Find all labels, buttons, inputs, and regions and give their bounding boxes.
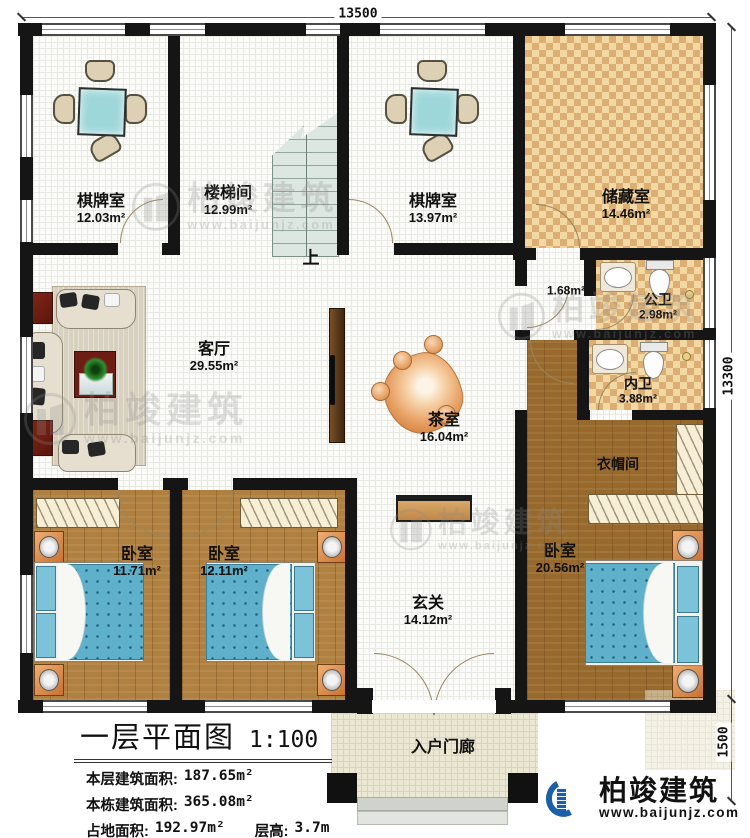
room-label-storage: 储藏室 14.46m² <box>602 189 650 221</box>
floor-drain <box>682 352 691 361</box>
headboard-cushion <box>294 613 314 658</box>
floor-plan-page: 棋牌室 12.03m² 楼梯间 12.99m² 棋牌室 13.97m² 储藏室 … <box>0 0 750 838</box>
chair <box>417 60 447 82</box>
room-label-chess2: 棋牌室 13.97m² <box>409 193 457 225</box>
headboard-cushion <box>294 566 314 611</box>
room-label-bedroom2: 卧室 12.11m² <box>200 546 248 578</box>
room-area: 11.71m² <box>113 564 161 579</box>
area-row-1: 本层建筑面积: 187.65m² <box>74 768 332 789</box>
room-name: 棋牌室 <box>409 193 457 211</box>
window <box>43 700 147 713</box>
wall <box>33 243 118 255</box>
row-label: 本层建筑面积: <box>86 768 178 789</box>
room-area: 16.04m² <box>420 430 468 445</box>
tea-stool <box>393 351 412 370</box>
mahjong-table <box>409 87 459 137</box>
dimension-right: 13300 <box>722 352 737 399</box>
room-label-bedroom1: 卧室 11.71m² <box>113 546 161 578</box>
plan-title: 一层平面图 <box>80 714 235 756</box>
lamp-icon <box>39 536 59 558</box>
mahjong-table <box>77 87 127 137</box>
brand-logo-icon <box>546 772 592 824</box>
porch-step-1 <box>357 797 508 811</box>
row-value: 192.97m² <box>155 820 225 838</box>
wall <box>515 260 527 286</box>
window <box>20 200 33 242</box>
wall <box>162 243 168 255</box>
row-label: 层高: <box>255 820 289 838</box>
wall <box>515 410 527 700</box>
room-name: 衣帽间 <box>597 457 639 473</box>
window <box>703 85 716 200</box>
entry-door-opening <box>372 700 496 713</box>
watermark-name: 柏竣建筑 <box>84 392 248 428</box>
watermark-logo-icon <box>24 393 76 445</box>
nightstand <box>672 530 704 564</box>
wall <box>163 478 188 490</box>
room-name: 入户门廊 <box>411 739 475 757</box>
window <box>205 700 312 713</box>
brand: 柏竣建筑 www.baijunjz.com <box>546 772 740 824</box>
room-name: 棋牌室 <box>77 193 125 211</box>
chair <box>53 94 75 124</box>
window <box>703 258 716 328</box>
lamp-icon <box>677 535 699 559</box>
watermark-url: www.baijunjz.com <box>84 430 248 446</box>
wardrobe <box>36 498 120 528</box>
window <box>703 340 716 408</box>
dimension-top: 13500 <box>334 7 381 22</box>
wall <box>233 478 345 490</box>
window <box>20 575 33 653</box>
wall <box>357 688 373 714</box>
plant <box>83 357 108 382</box>
wall <box>33 478 118 490</box>
watermark-url: www.baijunjz.com <box>438 538 569 551</box>
chair <box>385 94 407 124</box>
room-name: 客厅 <box>190 341 238 359</box>
cushion <box>59 292 78 308</box>
watermark-name: 柏竣建筑 <box>438 508 569 537</box>
room-label-cloakroom: 衣帽间 <box>597 457 639 473</box>
stairs-up-label: 上 <box>303 244 320 269</box>
mahjong-set <box>384 60 480 160</box>
lamp-icon <box>677 669 699 693</box>
tea-stool <box>424 335 443 354</box>
room-area: 20.56m² <box>536 561 584 576</box>
room-label-private-bath: 内卫 3.88m² <box>619 376 657 405</box>
lamp-icon <box>39 669 59 691</box>
nightstand <box>317 664 347 696</box>
room-area: 14.12m² <box>404 613 452 628</box>
wall <box>394 243 513 255</box>
room-name: 卧室 <box>113 546 161 564</box>
window <box>380 23 485 36</box>
room-label-tea: 茶室 16.04m² <box>420 412 468 444</box>
watermark: 柏竣建筑 www.baijunjz.com <box>132 182 338 232</box>
room-area: 29.55m² <box>190 359 238 374</box>
wall <box>577 340 589 410</box>
cushion <box>104 293 120 307</box>
watermark: 柏竣建筑 www.baijunjz.com <box>498 292 700 341</box>
mahjong-set <box>52 60 148 160</box>
wardrobe <box>240 498 338 528</box>
headboard-cushion <box>677 616 699 663</box>
watermark-url: www.baijunjz.com <box>187 217 338 232</box>
headboard-cushion <box>677 566 699 613</box>
watermark-logo-icon <box>390 509 432 551</box>
porch-pillar-right <box>508 773 538 803</box>
tv-screen <box>330 355 335 405</box>
watermark-name: 柏竣建筑 <box>552 292 700 324</box>
lamp-icon <box>322 536 342 558</box>
headboard-cushion <box>36 613 56 658</box>
room-label-living: 客厅 29.55m² <box>190 341 238 373</box>
window <box>150 23 205 36</box>
watermark: 柏竣建筑 www.baijunjz.com <box>24 392 248 446</box>
wall <box>513 36 525 260</box>
title-block: 一层平面图 1:100 本层建筑面积: 187.65m² 本栋建筑面积: 365… <box>74 714 332 838</box>
chair <box>125 94 147 124</box>
wall <box>170 490 182 700</box>
porch-step-2 <box>357 811 508 825</box>
nightstand <box>34 664 64 696</box>
window <box>565 700 670 713</box>
room-area: 3.88m² <box>619 392 657 405</box>
area-row-3: 占地面积: 192.97m² 层高: 3.7m <box>74 820 332 838</box>
room-area: 12.11m² <box>200 564 248 579</box>
row-value: 187.65m² <box>184 768 254 789</box>
dimension-right-lower: 1500 <box>717 722 732 761</box>
room-name: 储藏室 <box>602 189 650 207</box>
row-value: 3.7m <box>295 820 330 838</box>
cushion <box>31 342 45 359</box>
row-label: 本栋建筑面积: <box>86 794 178 815</box>
watermark-name: 柏竣建筑 <box>187 182 338 215</box>
window <box>42 23 125 36</box>
plan-title-row: 一层平面图 1:100 <box>74 714 332 763</box>
room-name: 卧室 <box>200 546 248 564</box>
brand-name: 柏竣建筑 <box>599 776 740 805</box>
lamp-icon <box>322 669 342 691</box>
nightstand <box>317 531 347 563</box>
room-label-foyer: 玄关 14.12m² <box>404 595 452 627</box>
watermark: 柏竣建筑 www.baijunjz.com <box>390 508 569 551</box>
cushion <box>31 366 45 382</box>
room-area: 12.03m² <box>77 211 125 226</box>
row-label: 占地面积: <box>86 820 149 838</box>
room-name: 内卫 <box>619 376 657 392</box>
sink <box>592 344 628 374</box>
sink <box>600 262 636 292</box>
room-label-porch: 入户门廊 <box>411 739 475 757</box>
area-row-2: 本栋建筑面积: 365.08m² <box>74 794 332 815</box>
wardrobe <box>676 424 705 496</box>
wall <box>337 36 349 255</box>
wall <box>580 248 703 260</box>
row-value: 365.08m² <box>184 794 254 815</box>
nightstand <box>34 531 64 563</box>
nightstand <box>672 664 704 698</box>
wardrobe <box>588 494 705 524</box>
watermark-logo-icon <box>498 293 545 340</box>
window <box>565 23 670 36</box>
room-label-chess1: 棋牌室 12.03m² <box>77 193 125 225</box>
room-name: 玄关 <box>404 595 452 613</box>
window <box>20 95 33 157</box>
wall <box>495 688 511 714</box>
brand-url: www.baijunjz.com <box>599 805 740 820</box>
cushion <box>81 294 100 311</box>
room-area: 13.97m² <box>409 211 457 226</box>
headboard-cushion <box>36 566 56 611</box>
window <box>306 23 340 36</box>
tea-stool <box>371 382 390 401</box>
plan-scale: 1:100 <box>249 727 318 753</box>
wall <box>513 248 536 260</box>
wall <box>632 410 703 420</box>
watermark-logo-icon <box>132 183 180 231</box>
watermark-url: www.baijunjz.com <box>552 326 700 340</box>
room-area: 14.46m² <box>602 207 650 222</box>
wall <box>345 478 357 700</box>
wall <box>577 410 590 420</box>
room-name: 茶室 <box>420 412 468 430</box>
chair <box>85 60 115 82</box>
chair <box>457 94 479 124</box>
